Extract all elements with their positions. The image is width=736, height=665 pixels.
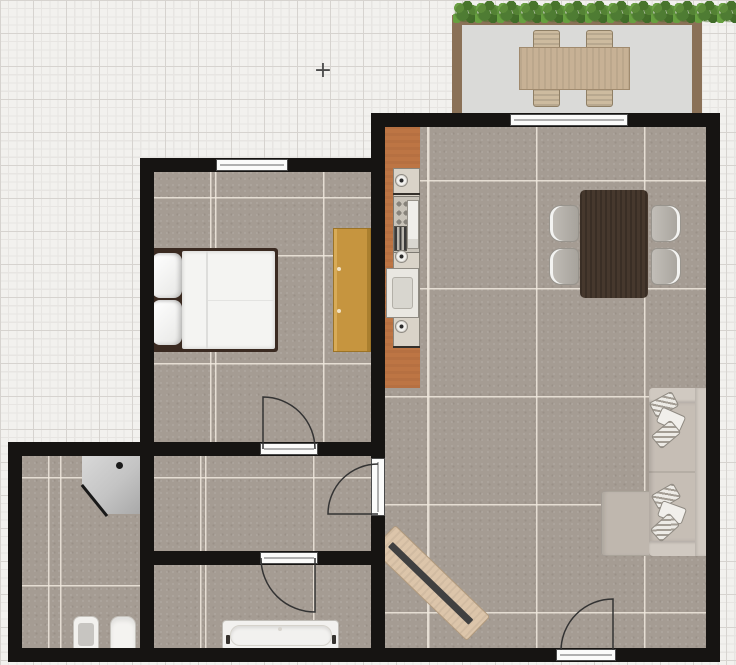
dining-chair[interactable] xyxy=(651,248,681,285)
bathtub-tap xyxy=(226,635,230,644)
bathtub-knob xyxy=(278,627,282,631)
pillow xyxy=(152,300,182,345)
hedge-plant[interactable] xyxy=(497,1,521,24)
hedge-plant[interactable] xyxy=(585,1,609,24)
wall-segment[interactable] xyxy=(140,158,154,456)
toilet-seat xyxy=(78,623,94,646)
kitchen-sink-round[interactable] xyxy=(395,174,408,187)
origin-cursor-marker: + xyxy=(312,60,334,82)
bed-mattress xyxy=(182,251,275,349)
bathtub-tap xyxy=(332,635,336,644)
living-room-window[interactable] xyxy=(510,114,628,126)
hedge-plant[interactable] xyxy=(607,1,631,24)
wall-segment[interactable] xyxy=(8,442,22,662)
hedge-plant[interactable] xyxy=(541,1,565,24)
kitchen-sink-round[interactable] xyxy=(395,250,408,263)
counter-divider xyxy=(393,193,420,195)
hallway-door-frame[interactable] xyxy=(371,458,385,516)
sink-basin xyxy=(392,277,413,309)
wall-segment[interactable] xyxy=(371,516,385,648)
wardrobe[interactable] xyxy=(333,228,371,352)
oven-door xyxy=(407,200,419,249)
wall-segment[interactable] xyxy=(140,442,154,662)
dining-chair[interactable] xyxy=(651,205,681,242)
hedge-plant[interactable] xyxy=(695,1,719,24)
wardrobe-handle xyxy=(337,267,341,271)
hedge-plant[interactable] xyxy=(453,1,477,24)
dining-table[interactable] xyxy=(580,190,648,298)
hallway-floor[interactable] xyxy=(152,454,373,553)
hedge-plant[interactable] xyxy=(717,1,736,24)
hedge-plant[interactable] xyxy=(673,1,697,24)
stove-grill xyxy=(394,226,407,251)
patio-table[interactable] xyxy=(519,47,630,90)
bathtub[interactable] xyxy=(222,620,339,651)
hedge-plant[interactable] xyxy=(475,1,499,24)
wall-segment[interactable] xyxy=(706,113,720,662)
duvet-center-line xyxy=(208,300,275,301)
dining-chair[interactable] xyxy=(549,248,579,285)
bathroom2-door-threshold[interactable] xyxy=(260,552,318,564)
hedge-plant[interactable] xyxy=(563,1,587,24)
hedge-plant[interactable] xyxy=(651,1,675,24)
entrance-door-threshold[interactable] xyxy=(556,649,616,661)
counter-divider xyxy=(393,346,420,348)
floorplan-canvas: + xyxy=(0,0,736,665)
hedge-plant[interactable] xyxy=(629,1,653,24)
pillow xyxy=(152,253,182,298)
dining-chair[interactable] xyxy=(549,205,579,242)
bedroom-door-threshold[interactable] xyxy=(260,443,318,455)
bedroom-window[interactable] xyxy=(216,159,288,171)
wall-segment[interactable] xyxy=(8,442,154,456)
kitchen-sink-round[interactable] xyxy=(395,320,408,333)
wardrobe-handle xyxy=(337,309,341,313)
sofa-chaise[interactable] xyxy=(601,491,650,556)
hedge-plant[interactable] xyxy=(519,1,543,24)
double-bed[interactable] xyxy=(148,248,278,352)
shower-drain xyxy=(116,462,123,469)
